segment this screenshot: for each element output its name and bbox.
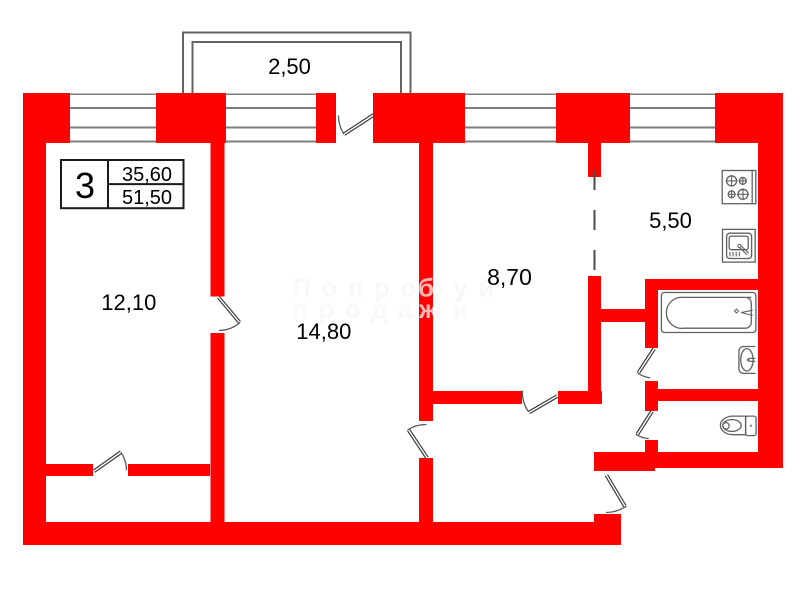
svg-text:3: 3 [75,165,95,206]
svg-text:2,50: 2,50 [268,54,311,79]
svg-text:35,60: 35,60 [122,164,172,186]
svg-text:5,50: 5,50 [649,208,692,233]
svg-text:14,80: 14,80 [296,319,351,344]
svg-text:8,70: 8,70 [487,264,532,290]
svg-text:12,10: 12,10 [101,290,156,315]
svg-text:ж: ж [418,294,438,324]
svg-text:51,50: 51,50 [122,187,172,209]
